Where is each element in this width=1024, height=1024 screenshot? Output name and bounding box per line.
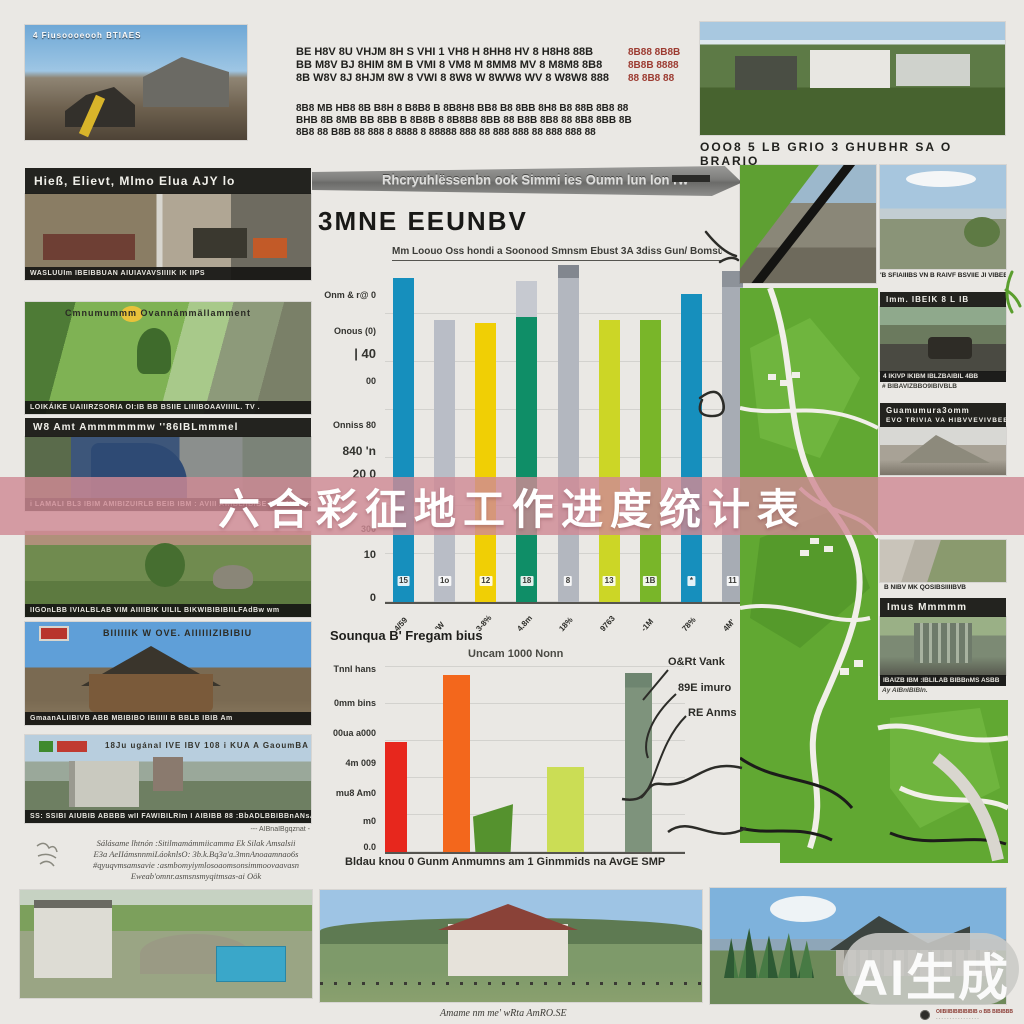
banner-title: 六合彩征地工作进度统计表 bbox=[218, 476, 806, 537]
photo-aerial-map-overlay bbox=[740, 165, 876, 283]
strip-text: Rhcryuhlëssenbn ook Simmi ies Oumn lun l… bbox=[382, 172, 688, 187]
left-block-6-photo-town: 18Ju ugánal IVE IBV 108 i KUA A GaoumBA … bbox=[25, 735, 311, 823]
bar bbox=[547, 767, 584, 852]
photo-construction-lot bbox=[880, 307, 1006, 371]
chart1-title: 3MNE EEUNBV bbox=[318, 206, 528, 237]
white-building-shape-2 bbox=[896, 54, 970, 86]
photo-caption: IBAIZB IBM :IBLILAB BIBBnMS ASBB bbox=[880, 675, 1006, 686]
ai-generated-watermark: AI生成 bbox=[852, 938, 1010, 1010]
photo-caption: # BIBAVIZBBO9IBIVBLB bbox=[880, 382, 1006, 391]
bottom-caption: Amame nm me' wRta AmRO.SE bbox=[440, 1008, 567, 1019]
photo-caption-bar: IIGOnLBB IVIALBLAB VIM AIIIIBIK UILIL BI… bbox=[25, 604, 311, 617]
right-block-6: Imus Mmmmm IBAIZB IBM :IBLILAB BIBBnMS A… bbox=[880, 598, 1006, 695]
stamp-scribble bbox=[34, 840, 60, 870]
pine-trees-shape bbox=[724, 928, 814, 978]
block-header-line1: Guamumura3omm bbox=[880, 403, 1006, 416]
machine-shape bbox=[193, 228, 247, 258]
globe-icon bbox=[920, 1010, 930, 1020]
headline-line: BB M8V BJ 8HIM 8M B VMI 8 VM8 M 8MM8 MV … bbox=[296, 59, 664, 72]
x-tick-label: 4M' bbox=[721, 612, 742, 634]
scaffold-shape bbox=[914, 623, 972, 663]
green-flag-icon bbox=[39, 741, 53, 752]
chart2-y-axis: Tnnl hans 0mm bins 00ua a000 4m 009 mu8 … bbox=[322, 666, 382, 852]
photo-seaside-field bbox=[880, 165, 1006, 269]
bar: 13 bbox=[599, 320, 620, 602]
garbled-headline-block: BE H8V 8U VHJM 8H S VHI 1 VH8 H 8HH8 HV … bbox=[296, 46, 664, 85]
x-tick-label: 18% bbox=[557, 612, 578, 634]
y-tick-label: 840 'n bbox=[342, 444, 376, 458]
bar: 15 bbox=[393, 278, 414, 602]
photo-caption-bar: LOIKÁIKE UAIIIRZSORIA OI:IB BB BSIIE LII… bbox=[25, 401, 311, 414]
left-block-1: Hieß, Elievt, Mlmo Elua AJY lo WASLUUIm … bbox=[25, 168, 311, 280]
chart1-y-axis: Onm & r@ 0 Onous (0) | 40 00 Onniss 80 8… bbox=[322, 268, 382, 602]
poster-page: 4 Fiusoooeooh BTIAES BE H8V 8U VHJM 8H S… bbox=[0, 0, 1024, 1024]
photo-caption: 'B SFIAIIIBS VN B RAIVF BSVIIE JI VIBEBI… bbox=[880, 272, 1006, 279]
bar-value-label: 11 bbox=[726, 576, 738, 586]
y-tick-label: 4m 009 bbox=[345, 758, 376, 768]
digger-shape bbox=[928, 337, 972, 359]
bar-value-label: * bbox=[688, 576, 695, 586]
bar-value-label: 8 bbox=[564, 576, 572, 586]
right-block-4: Guamumura3omm EVO TRIVIA VA HIBVVEVIVBEB… bbox=[880, 403, 1006, 475]
photo-buildings-trees bbox=[700, 22, 1005, 135]
x-tick-label: 4.8m bbox=[516, 612, 537, 634]
bar-value-label: 1o bbox=[438, 576, 451, 586]
metallic-title-strip: Rhcryuhlëssenbn ook Simmi ies Oumn lun l… bbox=[312, 166, 742, 196]
photo-road-greenhouses bbox=[880, 540, 1006, 582]
white-farm-building-shape bbox=[34, 900, 112, 978]
headline-line: BE H8V 8U VHJM 8H S VHI 1 VH8 H 8HH8 HV … bbox=[296, 46, 664, 59]
house-roof-shape bbox=[438, 904, 578, 930]
photo-caption: B NIBV MK QOSIBSIIIIBVB bbox=[884, 584, 1006, 591]
chart2-title: Sounqua B' Fregam bius bbox=[330, 628, 483, 643]
photo-caption: Ay AIBnIBIBIn. bbox=[880, 686, 1006, 695]
y-tick-label: Onous (0) bbox=[334, 326, 376, 336]
bar: 1B bbox=[640, 320, 661, 602]
photo-scaffold-building bbox=[880, 617, 1006, 675]
strip-notch bbox=[672, 175, 710, 182]
house-body-shape bbox=[448, 924, 568, 976]
photo-caption-bar: GmaanALIIBIVB ABB MBIBIBO IBIIIII B BBLB… bbox=[25, 712, 311, 725]
title-banner: 六合彩征地工作进度统计表 bbox=[0, 477, 1024, 535]
bar bbox=[443, 675, 470, 852]
photo-rail-yard: WASLUUIm IBEIBBUAN AIUIAVAVSIIIIK IK IIP… bbox=[25, 194, 311, 280]
bar: 18 bbox=[516, 317, 537, 602]
y-tick-label: 00 bbox=[366, 376, 376, 386]
main-bar-chart: 151o12188131B*11 bbox=[385, 268, 751, 604]
bar-value-label: 13 bbox=[603, 576, 616, 586]
y-tick-label: m0 bbox=[363, 816, 376, 826]
photo-caption-bar: SS: SSIBI AIUBIB ABBBB wII FAWIBILRIm I … bbox=[25, 810, 311, 823]
bar: 8 bbox=[558, 278, 579, 602]
woodpile-shape bbox=[89, 674, 213, 712]
subhead-line: 8B8 MB HB8 8B B8H 8 B8B8 B 8B8H8 BB8 B8 … bbox=[296, 103, 716, 115]
y-tick-label: 0.0 bbox=[363, 842, 376, 852]
block-header: Imm. IBEIK 8 L IB bbox=[880, 292, 1006, 307]
train-car-shape bbox=[43, 234, 135, 260]
tree-shape bbox=[145, 543, 185, 587]
red-flag-icon bbox=[41, 628, 67, 639]
photo-caption: 4 Fiusoooeooh BTIAES bbox=[33, 31, 141, 40]
bar-value-label: 1B bbox=[643, 576, 657, 586]
y-tick-label: 0 bbox=[370, 592, 376, 604]
footnote-paragraph: Sálásame lhtnón :Sitilmamámmiicamma Ek S… bbox=[62, 838, 330, 882]
photo-red-roof-house bbox=[320, 890, 702, 1002]
chart1-subtitle: Mm Loouo Oss hondi a Soonood Smnsm Ebust… bbox=[392, 246, 722, 261]
apartment-building-shape bbox=[69, 761, 139, 807]
apartment-building-shape-2 bbox=[153, 757, 183, 791]
publisher-line-2: - - - - - - - - - - - - - - - - bbox=[936, 1016, 979, 1021]
y-tick-label: 00ua a000 bbox=[333, 728, 376, 738]
block-header: Imus Mmmmm bbox=[880, 598, 1006, 617]
legend-item: 89E imuro bbox=[678, 682, 731, 694]
block-header: Hieß, Elievt, Mlmo Elua AJY lo bbox=[25, 168, 311, 194]
photo-title: 18Ju ugánal IVE IBV 108 i KUA A GaoumBA … bbox=[105, 741, 311, 750]
publisher-line-1: OIIBIIBIBIBIBIBIB o BB BIBIBBB bbox=[936, 1009, 1013, 1015]
y-tick-label: 10 bbox=[364, 549, 376, 561]
y-tick-label: | 40 bbox=[354, 346, 376, 361]
left-block-2-photo-landscape: Cmnumummm Ovannámmällamment LOIKÁIKE UAI… bbox=[25, 302, 311, 414]
chart2-subtitle: Uncam 1000 Nonn bbox=[468, 648, 563, 660]
headline-line: 8B W8V 8J 8HJM 8W 8 VWI 8 8W8 W 8WW8 WV … bbox=[296, 72, 664, 85]
road-shape bbox=[901, 540, 941, 582]
bar: 12 bbox=[475, 323, 496, 602]
bar bbox=[473, 804, 513, 852]
legend-item: O&Rt Vank bbox=[668, 656, 725, 668]
left-block-5-photo-barn: BIIIIIIK W OVE. AIIIIIIZIBIBIU GmaanALII… bbox=[25, 622, 311, 725]
photo-construction-site: 4 Fiusoooeooh BTIAES bbox=[25, 25, 247, 140]
bar-value-label: 15 bbox=[397, 576, 410, 586]
bar bbox=[385, 742, 407, 852]
fence-shape bbox=[320, 982, 702, 985]
y-tick-label: 0mm bins bbox=[334, 698, 376, 708]
x-tick-label: -1M bbox=[639, 612, 660, 634]
bar: 1o bbox=[434, 320, 455, 602]
photo-caption-bar: WASLUUIm IBEIBBUAN AIUIAVAVSIIIIK IK IIP… bbox=[25, 267, 311, 280]
y-tick-label: mu8 Am0 bbox=[336, 788, 376, 798]
blue-container-shape bbox=[216, 946, 286, 982]
dark-building-shape bbox=[735, 56, 797, 90]
bar-value-label: 18 bbox=[520, 576, 533, 586]
legend-item: RE Anms bbox=[688, 707, 737, 719]
bar bbox=[625, 673, 652, 852]
y-tick-label: Onm & r@ 0 bbox=[324, 290, 376, 300]
subhead-line: 8B8 88 B8B 88 888 8 8888 8 88888 888 88 … bbox=[296, 127, 716, 139]
tree-shape bbox=[137, 328, 171, 374]
rock-shape bbox=[213, 565, 253, 589]
photo-hillside bbox=[880, 427, 1006, 475]
cloud-shape bbox=[906, 171, 976, 187]
red-flag-icon bbox=[57, 741, 87, 752]
chart1-x-axis: 4/59'W3-8%4.8m18%9763-1M78%4M' bbox=[385, 608, 751, 617]
photo-caption: 4 IKIVP IKIBM IBLZBAIBIL 4BB bbox=[880, 371, 1006, 382]
white-building-shape bbox=[810, 50, 890, 88]
x-tick-label: 78% bbox=[680, 612, 701, 634]
cloud-shape bbox=[770, 896, 836, 922]
bar-cap bbox=[516, 281, 537, 317]
photo-title: BIIIIIIK W OVE. AIIIIIIZIBIBIU bbox=[103, 628, 252, 638]
subhead-line: BHB 8B 8MB BB 8BB B 8B8B 8 8B8B8 8BB 88 … bbox=[296, 115, 716, 127]
building-shape bbox=[143, 57, 229, 107]
block-header: W8 Amt Ammmmmmw ''86IBLmmmel bbox=[25, 418, 311, 437]
hill-shape bbox=[900, 435, 990, 463]
bar-value-label: 12 bbox=[479, 576, 492, 586]
garbled-headline-red: 8B88 8B8B 8B8B 8888 88 8B8 88 bbox=[628, 46, 706, 85]
chart2-x-caption: Bldau knou 0 Gunm Anmumns am 1 Ginmmids … bbox=[345, 856, 745, 868]
garbled-subhead-block: 8B8 MB HB8 8B B8H 8 B8B8 B 8B8H8 BB8 B8 … bbox=[296, 103, 716, 139]
photo-top-caption: Cmnumummm Ovannámmällamment bbox=[65, 308, 251, 318]
right-block-3: Imm. IBEIK 8 L IB 4 IKIVP IKIBM IBLZBAIB… bbox=[880, 292, 1006, 391]
bar-cap bbox=[558, 265, 579, 278]
bar: * bbox=[681, 294, 702, 602]
block-sub-caption: --- AIBnaIBgqznat - bbox=[180, 826, 310, 833]
block-header-line2: EVO TRIVIA VA HIBVVEVIVBEB BZLEEIBZB bbox=[880, 416, 1006, 427]
x-tick-label: 9763 bbox=[598, 612, 619, 634]
photo-farm-container bbox=[20, 890, 312, 998]
y-tick-label: Tnnl hans bbox=[334, 664, 377, 674]
secondary-bar-chart bbox=[385, 666, 685, 854]
left-block-4-photo-garden: IIGOnLBB IVIALBLAB VIM AIIIIBIK UILIL BI… bbox=[25, 531, 311, 617]
bush-shape bbox=[964, 217, 1000, 247]
photo-caption-bold: OOO8 5 LB GRIO 3 GHUBHR SA O BRARIO bbox=[700, 140, 1005, 168]
orange-equipment-shape bbox=[253, 238, 287, 258]
y-tick-label: Onniss 80 bbox=[333, 420, 376, 430]
